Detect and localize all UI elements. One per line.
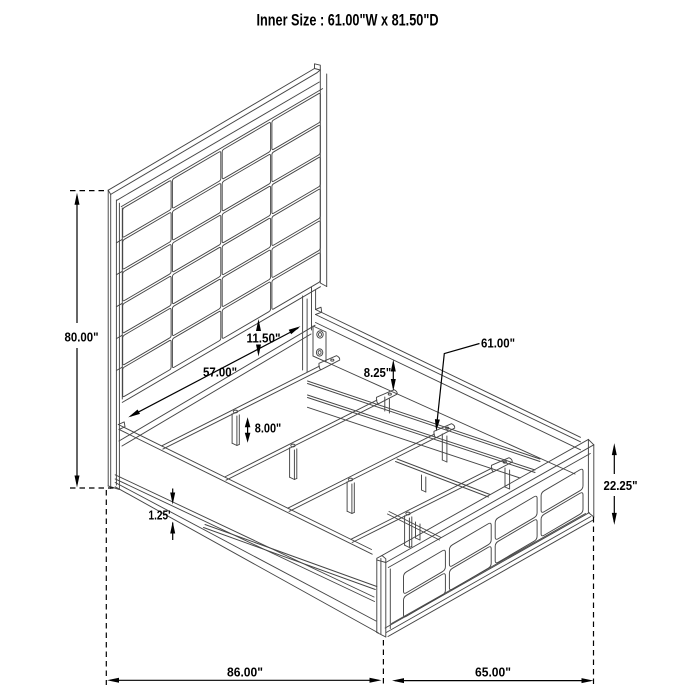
svg-text:8.00": 8.00" bbox=[255, 421, 282, 436]
svg-text:57.00": 57.00" bbox=[203, 365, 237, 380]
svg-text:8.25": 8.25" bbox=[364, 365, 392, 380]
svg-text:1.25': 1.25' bbox=[149, 508, 171, 523]
svg-text:80.00": 80.00" bbox=[65, 330, 99, 345]
svg-text:Inner Size : 61.00"W x 81.50"D: Inner Size : 61.00"W x 81.50"D bbox=[257, 11, 439, 30]
svg-text:11.50": 11.50" bbox=[247, 331, 281, 346]
svg-text:61.00": 61.00" bbox=[481, 336, 515, 351]
svg-text:86.00": 86.00" bbox=[227, 665, 263, 680]
svg-text:22.25": 22.25" bbox=[604, 478, 638, 493]
svg-text:65.00": 65.00" bbox=[475, 665, 511, 680]
